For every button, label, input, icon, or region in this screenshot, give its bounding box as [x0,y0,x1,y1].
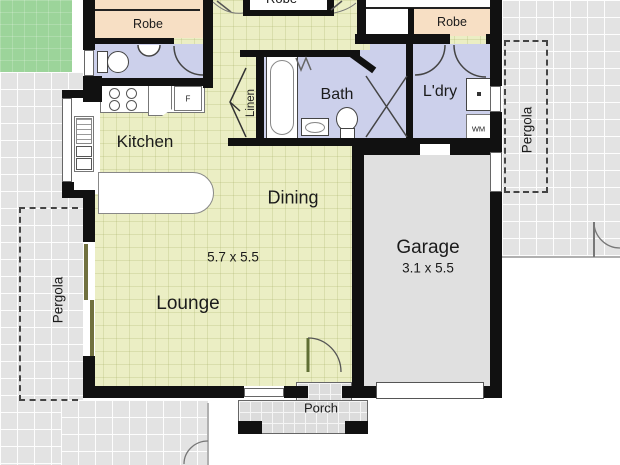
linen-bifold-door [230,68,246,137]
garage-label: Garage [396,237,459,259]
left-gate-arc [184,441,208,464]
lounge-dimensions: 5.7 x 5.5 [207,250,259,265]
robe-left-label: Robe [133,17,163,31]
lounge-label: Lounge [156,293,219,315]
linen-label: Linen [245,89,257,117]
dining-label: Dining [267,188,318,209]
laundry-door-arc-right [454,45,486,77]
right-gate-arc [594,222,620,248]
pergola-left-label: Pergola [51,277,66,324]
garage-dimensions: 3.1 x 5.5 [402,261,454,276]
kitchen-label: Kitchen [117,132,174,152]
shower-screen-x [366,76,407,137]
bath-label: Bath [321,86,354,104]
porch-label: Porch [304,401,338,416]
front-door-arc [308,338,341,372]
wc-basin [138,45,160,56]
pergola-right-label: Pergola [520,107,535,154]
plan-linework [0,0,620,465]
floor-plan: Robe F WM [0,0,620,465]
bath-taps [296,58,311,70]
laundry-door-arc-left [415,45,445,75]
bedroom-right-door-leaf [331,1,342,10]
laundry-label: L'dry [423,83,457,101]
bedroom-left-door-arc [213,2,243,13]
robe-right-label: Robe [437,15,467,29]
wc-door-arc [174,46,203,75]
